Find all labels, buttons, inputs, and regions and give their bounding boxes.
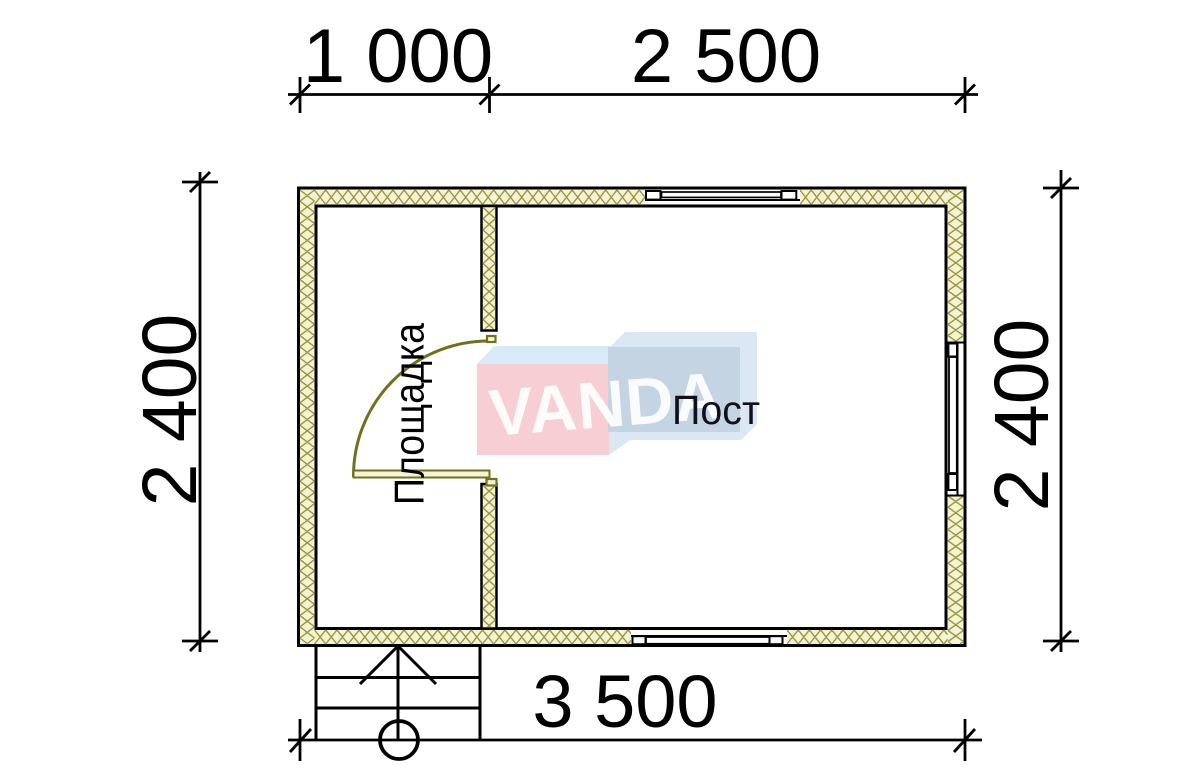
svg-text:2 400: 2 400 [979, 319, 1065, 512]
svg-text:2 400: 2 400 [127, 314, 213, 507]
svg-text:3 500: 3 500 [532, 660, 717, 743]
svg-text:Площадка: Площадка [386, 322, 433, 505]
svg-text:1 000: 1 000 [303, 14, 493, 99]
svg-text:2 500: 2 500 [631, 14, 821, 99]
svg-text:Пост: Пост [672, 387, 760, 433]
